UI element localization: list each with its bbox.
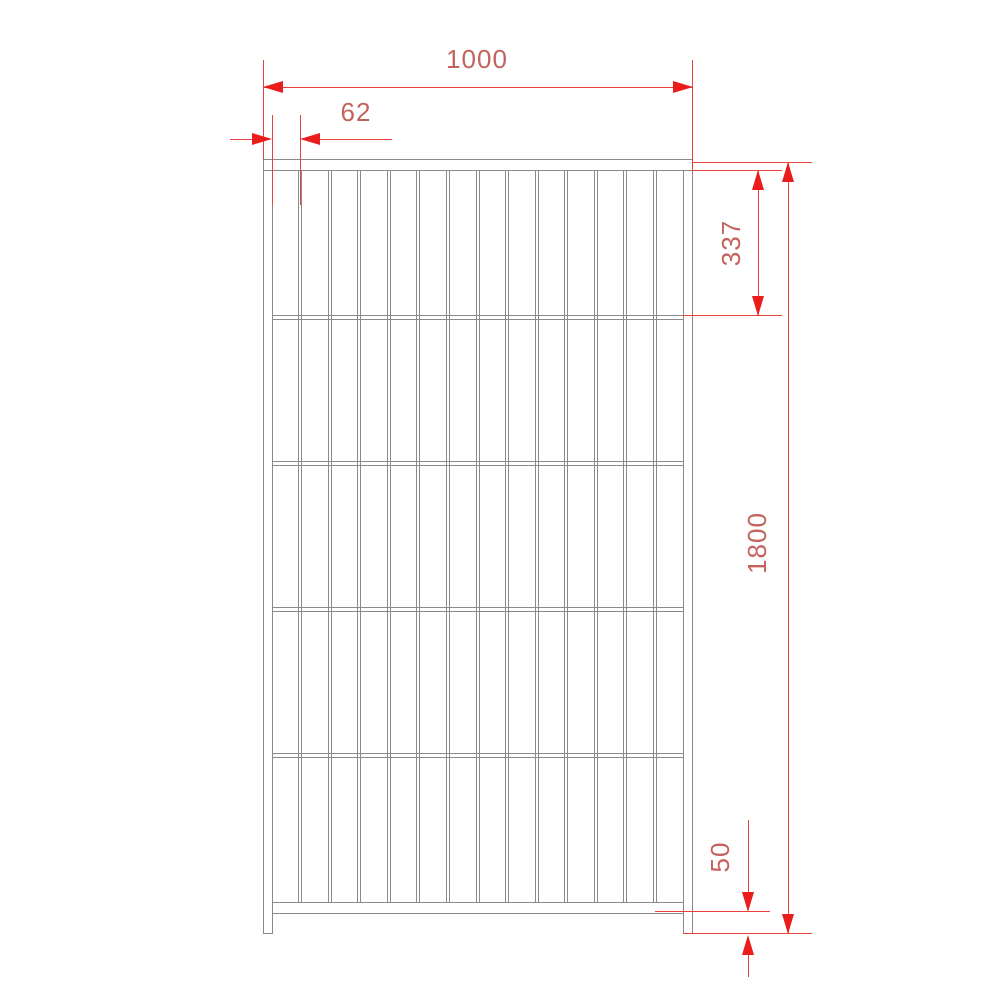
fence-bar <box>298 171 302 902</box>
dimension-line-tail <box>748 955 749 977</box>
fence-bar <box>505 171 509 902</box>
panel-bottom-rail <box>272 902 684 914</box>
arrowhead-up <box>782 162 794 182</box>
dimension-width-label: 1000 <box>427 46 527 72</box>
arrowhead-down <box>752 296 764 316</box>
arrowhead-up <box>742 935 754 955</box>
extension-line <box>683 315 782 316</box>
dimension-total-height-label: 1800 <box>744 512 770 574</box>
arrowhead-down <box>782 914 794 934</box>
fence-bar <box>416 171 420 902</box>
arrowhead-left <box>300 133 320 145</box>
fence-bar <box>535 171 539 902</box>
fence-panel-technical-drawing: 1000 62 337 1800 50 <box>0 0 1000 1000</box>
arrowhead-up <box>752 170 764 190</box>
fence-bar <box>594 171 598 902</box>
dimension-line <box>758 170 759 316</box>
extension-line <box>692 60 693 171</box>
fence-bar <box>446 171 450 902</box>
arrowhead-left <box>263 81 283 93</box>
fence-bar <box>623 171 627 902</box>
arrowhead-right <box>252 133 272 145</box>
dimension-line-tail <box>748 820 749 892</box>
dimension-bar-spacing-label: 62 <box>330 99 382 125</box>
fence-bar <box>328 171 332 902</box>
extension-line <box>272 115 273 205</box>
dimension-line-tail <box>320 139 392 140</box>
dimension-bottom-clearance-label: 50 <box>707 842 733 873</box>
fence-bar <box>653 171 657 902</box>
dimension-top-section-label: 337 <box>718 220 744 266</box>
extension-line <box>692 170 782 171</box>
arrowhead-down <box>742 892 754 912</box>
fence-bar <box>564 171 568 902</box>
extension-line <box>300 115 301 205</box>
fence-bar <box>387 171 391 902</box>
panel-left-post <box>263 171 273 934</box>
fence-bar <box>357 171 361 902</box>
arrowhead-right <box>673 81 693 93</box>
dimension-line <box>788 162 789 934</box>
fence-bar <box>476 171 480 902</box>
dimension-line <box>263 87 693 88</box>
dimension-line-tail <box>230 139 252 140</box>
panel-top-rail <box>263 159 693 171</box>
extension-line <box>692 162 812 163</box>
panel-right-post <box>683 171 693 934</box>
